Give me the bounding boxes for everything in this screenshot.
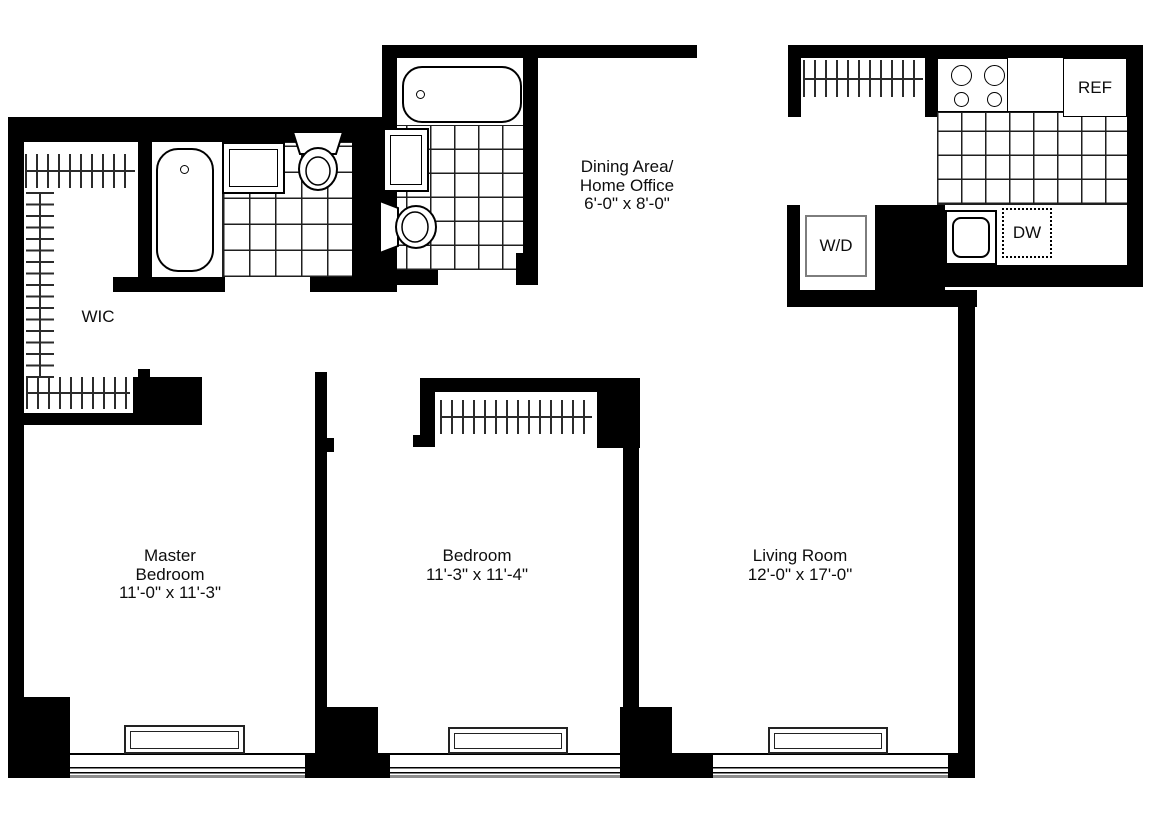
bedroom-name: Bedroom xyxy=(397,547,557,566)
dining-area-name-line2: Home Office xyxy=(547,177,707,196)
living-room-dimensions: 12'-0" x 17'-0" xyxy=(720,566,880,585)
kitchen-counter xyxy=(1008,58,1063,112)
wall-segment xyxy=(413,435,420,447)
stove-burner-icon xyxy=(954,92,969,107)
stove-burner-icon xyxy=(951,65,972,86)
kitchen-sink xyxy=(945,210,997,265)
wall-segment xyxy=(523,58,538,270)
bedroom-window xyxy=(390,753,620,778)
dining-area-label: Dining Area/ Home Office 6'-0" x 8'-0" xyxy=(547,158,707,214)
kitchen-closet-rod xyxy=(803,60,923,97)
wall-segment xyxy=(138,369,150,379)
wall-segment xyxy=(623,448,639,707)
master-bedroom-window xyxy=(70,753,305,778)
bathtub xyxy=(402,66,522,123)
bedroom-closet-rod xyxy=(440,400,592,434)
wall-segment xyxy=(315,372,327,753)
wall-segment xyxy=(620,707,672,753)
wall-segment xyxy=(788,45,801,117)
bathroom-sink xyxy=(383,128,429,192)
sink-basin xyxy=(390,135,422,185)
radiator xyxy=(124,725,245,754)
wall-segment xyxy=(925,58,937,117)
tub-drain-icon xyxy=(180,165,189,174)
bedroom-label: Bedroom 11'-3" x 11'-4" xyxy=(397,547,557,584)
refrigerator-label: REF xyxy=(1078,78,1112,98)
wall-segment xyxy=(620,753,713,778)
toilet xyxy=(379,198,439,256)
refrigerator-box: REF xyxy=(1063,58,1127,117)
stove xyxy=(937,58,1008,112)
dining-area-dimensions: 6'-0" x 8'-0" xyxy=(547,195,707,214)
master-bedroom-name-line1: Master xyxy=(90,547,250,566)
stove-burner-icon xyxy=(987,92,1002,107)
dishwasher-box: DW xyxy=(1002,208,1052,258)
living-room-name: Living Room xyxy=(720,547,880,566)
wic-closet-rod-bottom xyxy=(26,377,130,409)
washer-dryer-label: W/D xyxy=(819,236,852,256)
master-bedroom-label: Master Bedroom 11'-0" x 11'-3" xyxy=(90,547,250,603)
wall-segment xyxy=(8,697,70,778)
wall-segment xyxy=(327,438,334,452)
radiator xyxy=(768,727,888,754)
dishwasher-label: DW xyxy=(1013,223,1041,243)
wall-segment xyxy=(382,45,697,58)
stove-burner-icon xyxy=(984,65,1005,86)
bathroom-sink xyxy=(222,142,285,194)
kitchen-tile-floor xyxy=(937,112,1127,205)
sink-basin xyxy=(229,149,278,187)
wall-segment xyxy=(420,392,435,447)
dining-area-name-line1: Dining Area/ xyxy=(547,158,707,177)
wall-segment xyxy=(597,378,640,448)
wall-segment xyxy=(315,707,378,753)
floor-plan: REF DW W/D WIC Dining Area/ Home Office … xyxy=(0,0,1151,825)
living-room-label: Living Room 12'-0" x 17'-0" xyxy=(720,547,880,584)
wall-segment xyxy=(945,265,1143,287)
wall-segment xyxy=(948,753,975,778)
bathtub xyxy=(156,148,214,272)
wall-segment xyxy=(788,45,1143,58)
wall-segment xyxy=(133,377,202,425)
wall-segment xyxy=(305,753,390,778)
master-bedroom-dimensions: 11'-0" x 11'-3" xyxy=(90,584,250,603)
tub-drain-icon xyxy=(416,90,425,99)
washer-dryer-box: W/D xyxy=(805,215,867,277)
living-room-window xyxy=(713,753,948,778)
wic-label: WIC xyxy=(58,308,138,327)
wic-closet-rod-left xyxy=(26,192,54,378)
wall-segment xyxy=(787,290,977,307)
wall-segment xyxy=(113,277,225,292)
wall-segment xyxy=(958,307,975,753)
radiator-core xyxy=(774,733,882,749)
bedroom-dimensions: 11'-3" x 11'-4" xyxy=(397,566,557,585)
radiator-core xyxy=(130,731,239,749)
radiator xyxy=(448,727,568,754)
toilet xyxy=(290,131,346,193)
wall-segment xyxy=(1127,58,1143,287)
wall-segment xyxy=(516,253,538,285)
wic-closet-rod-top xyxy=(25,154,135,188)
wall-segment xyxy=(138,142,152,292)
master-bedroom-name-line2: Bedroom xyxy=(90,566,250,585)
kitchen-sink-basin xyxy=(952,217,990,258)
wall-segment xyxy=(8,117,24,778)
radiator-core xyxy=(454,733,562,749)
wall-segment xyxy=(310,277,397,292)
